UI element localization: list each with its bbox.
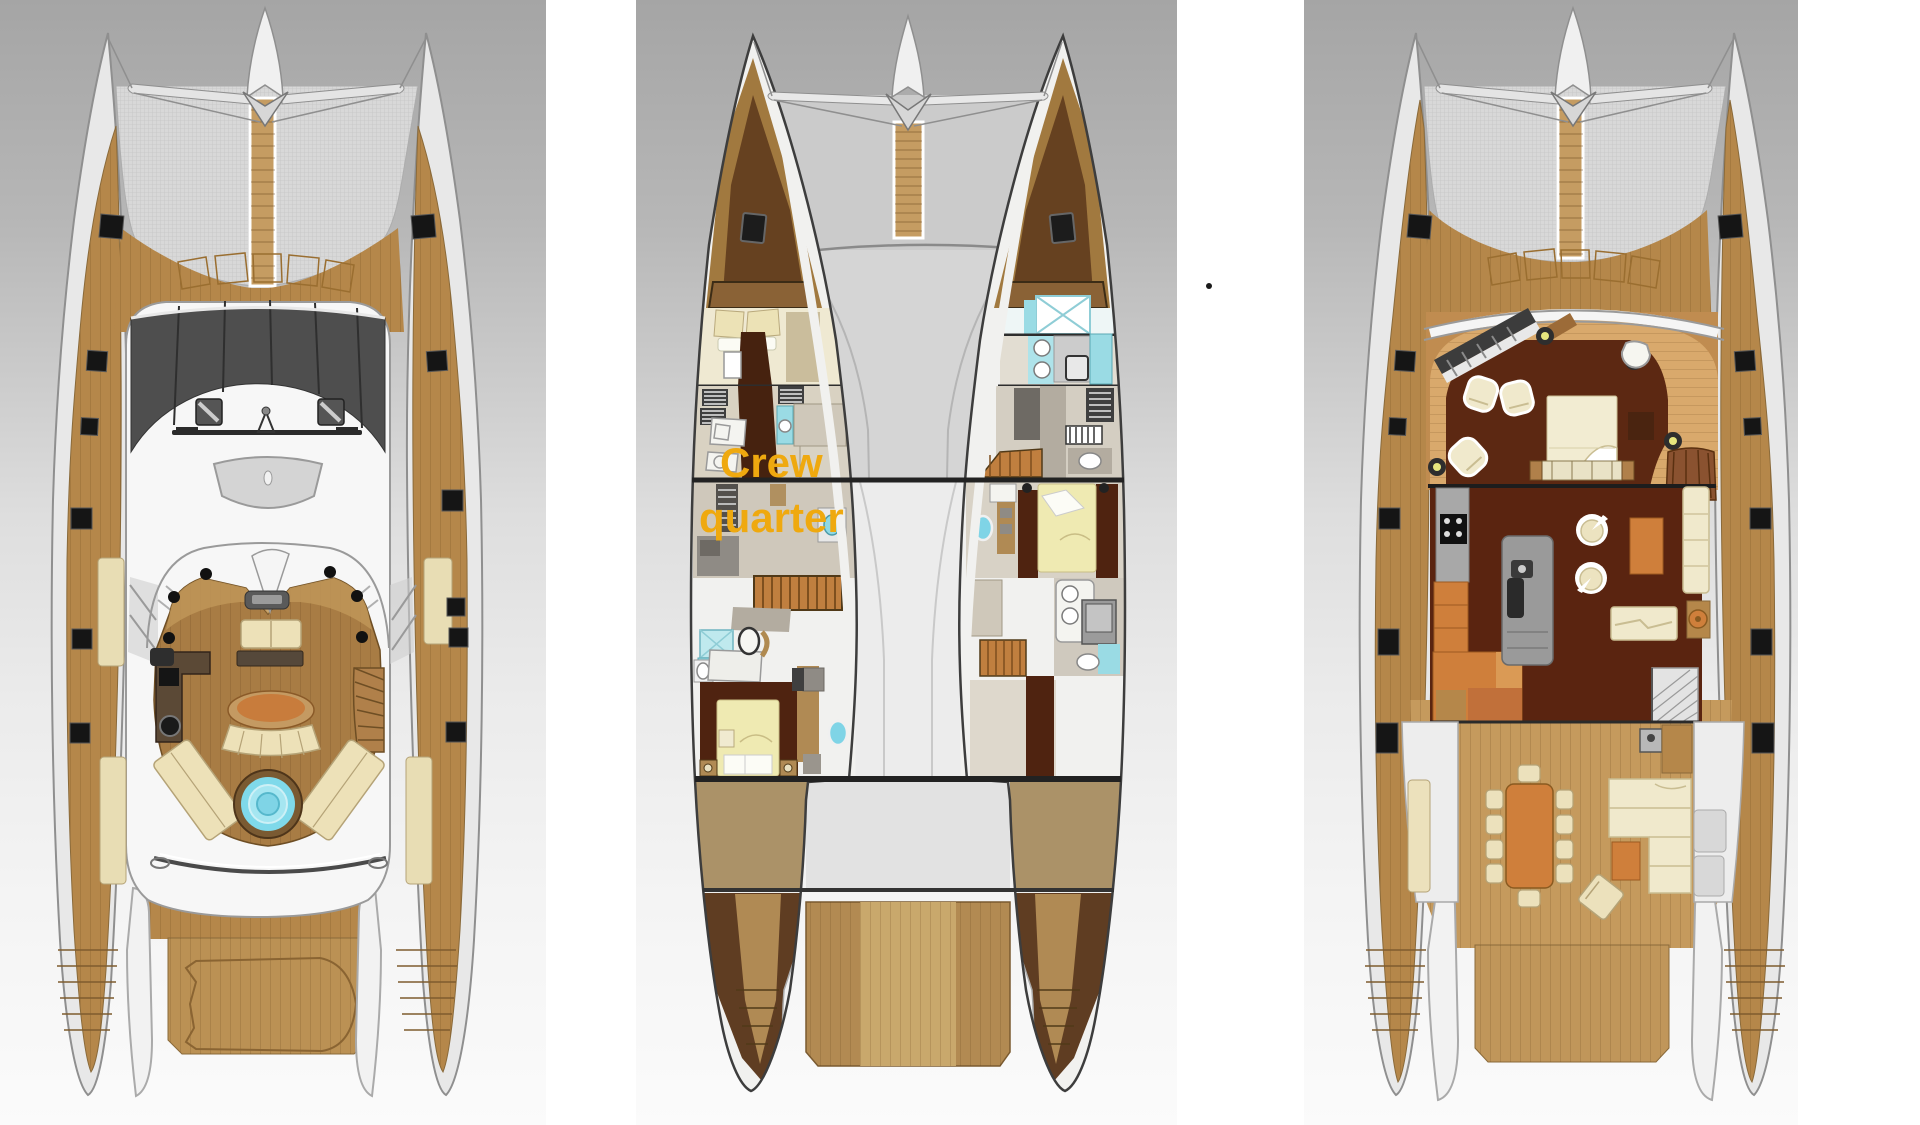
svg-text:Crew: Crew — [720, 439, 823, 486]
svg-text:quarter: quarter — [699, 494, 844, 541]
